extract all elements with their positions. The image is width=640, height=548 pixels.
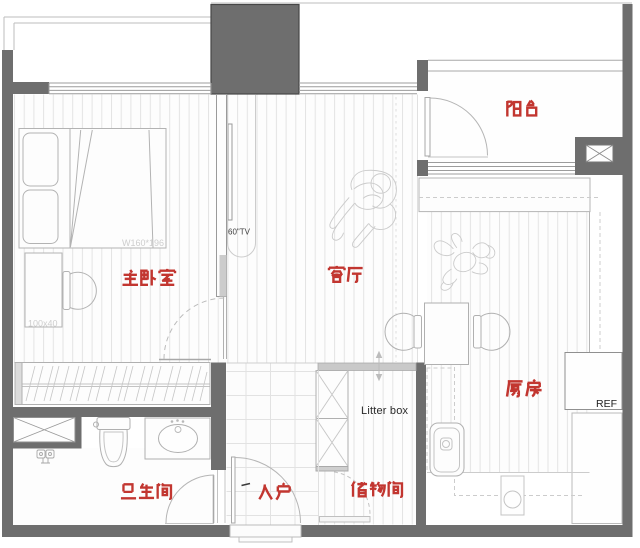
svg-text:W160*196: W160*196 <box>122 238 164 248</box>
svg-text:100x40: 100x40 <box>28 319 58 329</box>
svg-text:60"TV: 60"TV <box>228 228 251 237</box>
svg-text:REF: REF <box>596 398 617 410</box>
svg-text:Litter box: Litter box <box>361 405 409 417</box>
